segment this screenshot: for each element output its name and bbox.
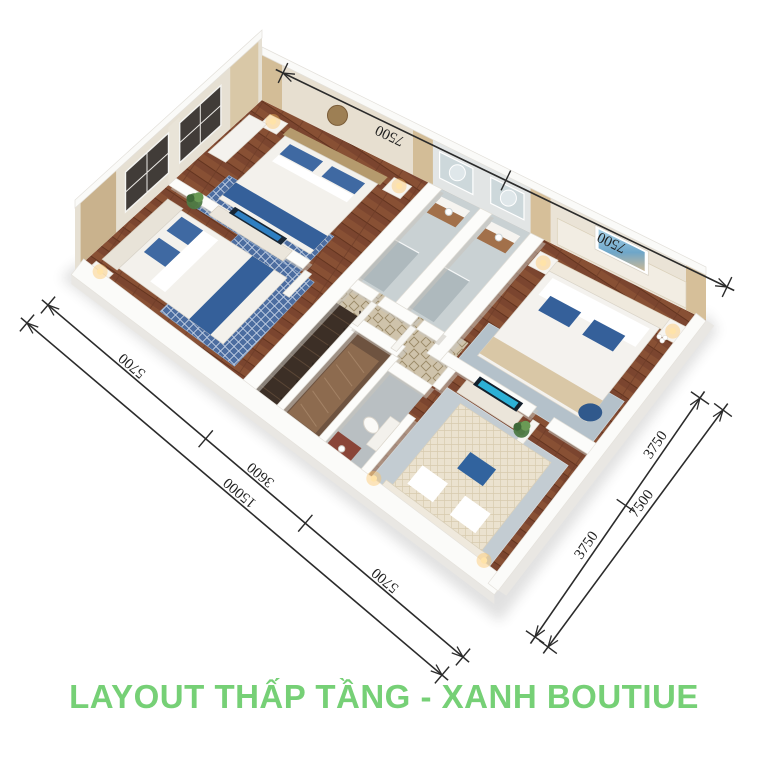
wall-mirror-decor: [327, 105, 347, 125]
dimension-label: 3750: [641, 428, 671, 462]
lamp: [481, 557, 487, 563]
lamp: [540, 260, 546, 266]
basin: [338, 446, 344, 452]
lamp: [97, 268, 103, 274]
dimension-label: 7500: [626, 487, 657, 521]
sheer-curtain: [169, 117, 180, 185]
basin: [445, 208, 452, 215]
dim-tick: [199, 430, 213, 447]
page-title: LAYOUT THẤP TẦNG - XANH BOUTIUE: [0, 678, 768, 716]
plant: [520, 421, 530, 431]
flowers: [657, 334, 662, 339]
plant: [513, 423, 521, 431]
dimension-label: 3600: [244, 459, 277, 491]
floorplan-canvas: 7500750057003600570015000375037507500: [0, 0, 768, 768]
basin: [495, 234, 502, 241]
bath-mirror: [449, 165, 465, 181]
dim-tick: [298, 515, 312, 532]
dimension-label: 5700: [116, 350, 149, 382]
floorplan-render: [61, 30, 718, 622]
lamp: [371, 475, 377, 481]
plant: [187, 194, 195, 202]
lamp: [270, 118, 276, 124]
lamp: [670, 328, 676, 334]
dimension-label: 3750: [571, 529, 601, 563]
lamp: [396, 183, 402, 189]
plant: [194, 192, 204, 202]
bath-mirror: [500, 190, 516, 206]
dimension-label: 5700: [369, 564, 402, 596]
floorplan-page: 7500750057003600570015000375037507500 LA…: [0, 0, 768, 768]
flowers: [663, 335, 668, 340]
armchair: [578, 403, 602, 421]
